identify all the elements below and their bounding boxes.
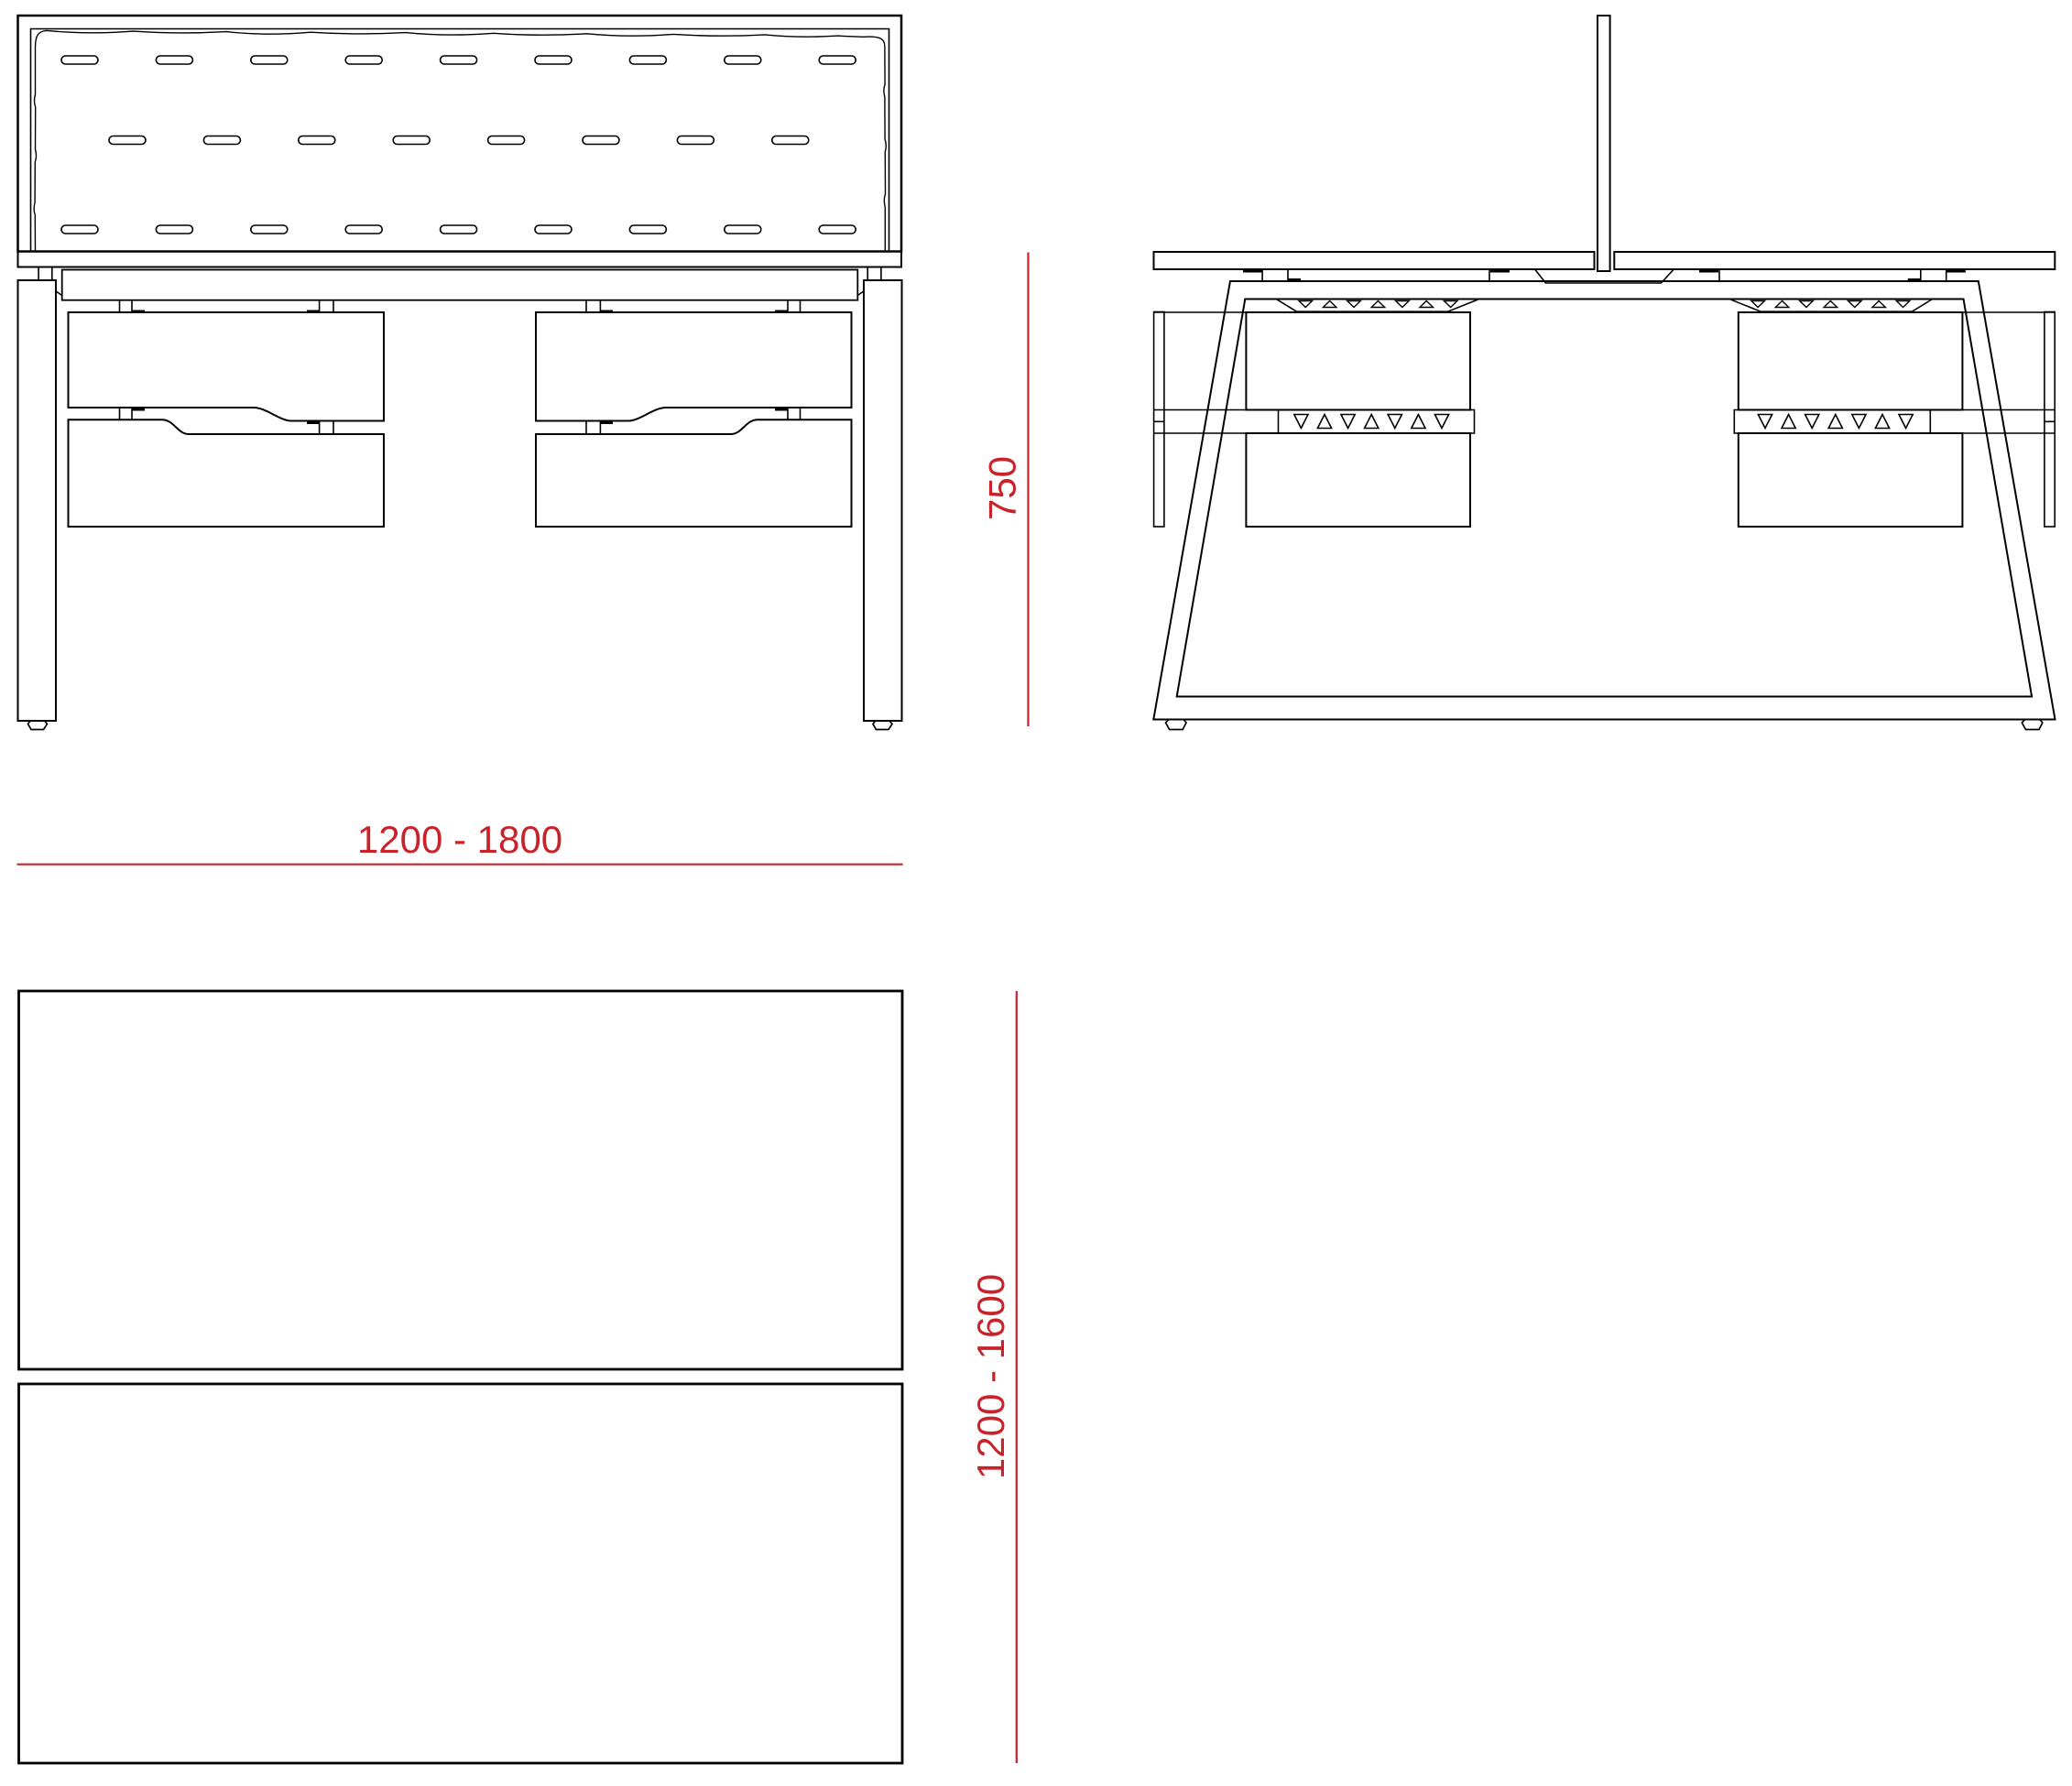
svg-text:1200 - 1600: 1200 - 1600: [969, 1274, 1012, 1479]
svg-text:1200 - 1800: 1200 - 1800: [357, 818, 562, 861]
svg-text:750: 750: [981, 456, 1024, 520]
